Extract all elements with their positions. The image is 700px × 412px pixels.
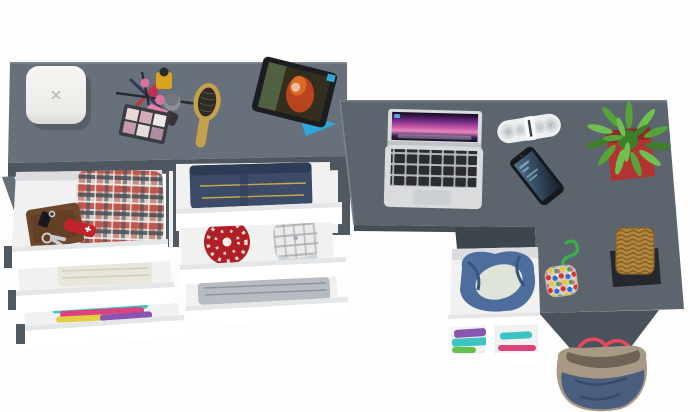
under-desk-drawer-unit	[446, 227, 540, 367]
denim-jacket	[460, 251, 535, 311]
render-stage	[0, 0, 700, 412]
furniture-scene	[0, 0, 700, 412]
laptop-trackpad	[413, 189, 451, 205]
drawer-left-1	[4, 168, 168, 269]
basket-body	[616, 228, 654, 274]
nail-polish-pink-2	[155, 95, 165, 105]
screen-menu-logo	[394, 114, 400, 118]
laptop-keyboard	[390, 149, 477, 188]
drawer-unit-top	[455, 227, 536, 250]
denim-tote-bag	[557, 339, 647, 411]
drawer-slide	[16, 324, 25, 344]
drawer-right-1	[176, 162, 342, 231]
nail-polish-pink	[141, 79, 150, 88]
dresser-middle-leg-highlight	[169, 171, 173, 247]
jewelry-box	[26, 66, 91, 130]
shelf-divider	[486, 325, 494, 354]
laptop	[384, 109, 485, 210]
nail-polish-red	[148, 87, 158, 97]
jeans-fold	[240, 166, 248, 206]
drawer-slide	[4, 246, 12, 268]
wicker-basket	[610, 228, 661, 287]
pompom-pouch	[544, 264, 579, 298]
drawer-slide	[8, 290, 16, 310]
